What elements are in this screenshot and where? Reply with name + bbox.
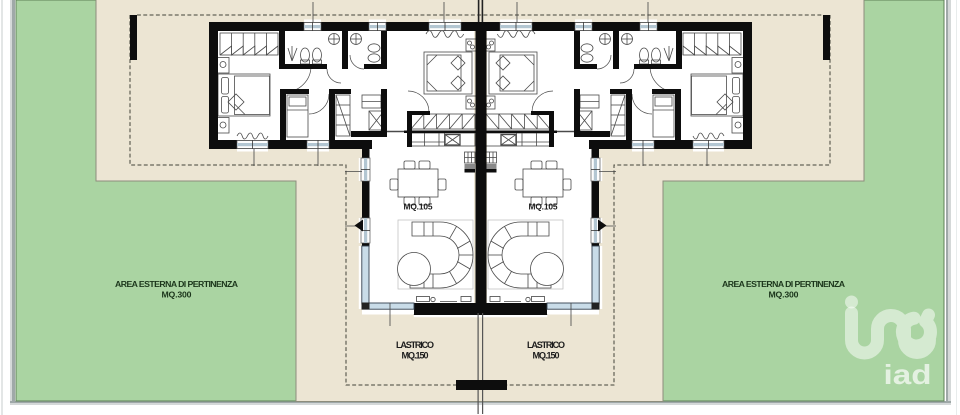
svg-text:iad: iad	[884, 359, 932, 390]
svg-text:MQ.150: MQ.150	[402, 351, 429, 361]
svg-text:MQ.300: MQ.300	[162, 289, 192, 299]
svg-text:MQ.105: MQ.105	[529, 202, 558, 212]
svg-text:AREA ESTERNA DI PERTINENZA: AREA ESTERNA DI PERTINENZA	[115, 279, 239, 289]
svg-text:LASTRICO: LASTRICO	[527, 340, 565, 350]
svg-text:LASTRICO: LASTRICO	[396, 340, 434, 350]
svg-text:MQ.150: MQ.150	[533, 351, 560, 361]
svg-text:MQ.105: MQ.105	[404, 202, 433, 212]
svg-text:AREA ESTERNA DI PERTINENZA: AREA ESTERNA DI PERTINENZA	[722, 279, 846, 289]
svg-text:MQ.300: MQ.300	[769, 289, 799, 299]
